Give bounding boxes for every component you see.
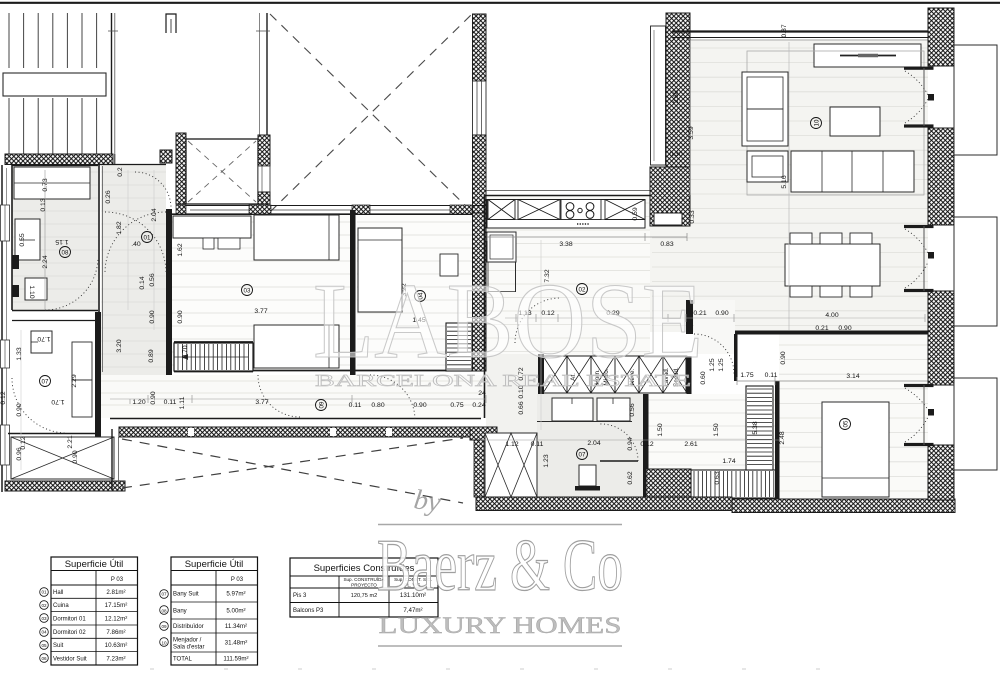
svg-text:0.63: 0.63 — [714, 471, 721, 484]
svg-text:1.23: 1.23 — [543, 454, 550, 467]
svg-text:Vestidor Suit: Vestidor Suit — [53, 657, 87, 663]
svg-text:0.12: 0.12 — [20, 436, 27, 449]
svg-text:0.24: 0.24 — [472, 402, 485, 409]
svg-text:.40: .40 — [131, 241, 141, 248]
svg-text:0.12: 0.12 — [640, 441, 653, 448]
svg-text:10: 10 — [813, 119, 820, 126]
svg-text:P 03: P 03 — [111, 577, 124, 583]
svg-text:31.48m²: 31.48m² — [225, 640, 248, 647]
svg-text:0.13: 0.13 — [40, 198, 47, 211]
svg-text:06: 06 — [41, 656, 47, 661]
svg-text:2.81m²: 2.81m² — [106, 589, 125, 596]
svg-text:0.21: 0.21 — [815, 325, 828, 332]
svg-text:3.38: 3.38 — [559, 241, 572, 248]
svg-text:3.77: 3.77 — [254, 308, 267, 315]
svg-text:0.90: 0.90 — [16, 403, 23, 416]
svg-text:P 03: P 03 — [231, 577, 244, 583]
svg-text:0.75: 0.75 — [450, 402, 463, 409]
svg-text:03: 03 — [244, 287, 251, 294]
svg-text:by: by — [412, 484, 443, 518]
svg-text:0.11: 0.11 — [765, 372, 778, 379]
svg-text:TOTAL: TOTAL — [173, 657, 192, 663]
svg-text:0.55: 0.55 — [19, 233, 26, 246]
svg-text:2.48: 2.48 — [779, 431, 786, 444]
svg-text:Sala d'estar: Sala d'estar — [173, 645, 205, 651]
svg-text:Superficie Útil: Superficie Útil — [185, 559, 244, 570]
svg-text:0.70: 0.70 — [182, 345, 189, 358]
svg-text:2.24: 2.24 — [42, 255, 49, 268]
svg-text:08: 08 — [62, 249, 69, 256]
svg-text:5.97m²: 5.97m² — [226, 591, 245, 598]
svg-text:0.11: 0.11 — [531, 441, 544, 448]
svg-text:3.20: 3.20 — [116, 339, 123, 352]
svg-text:0.90: 0.90 — [177, 310, 184, 323]
svg-text:0.90: 0.90 — [149, 310, 156, 323]
svg-text:07: 07 — [579, 451, 586, 458]
svg-text:1.70: 1.70 — [51, 398, 64, 405]
svg-text:1.33: 1.33 — [16, 347, 23, 360]
svg-text:09: 09 — [161, 624, 167, 629]
svg-text:0.2: 0.2 — [117, 167, 124, 177]
svg-text:0.26: 0.26 — [105, 190, 112, 203]
svg-text:10: 10 — [161, 640, 167, 645]
svg-text:BARCELONA REAL ESTATE: BARCELONA REAL ESTATE — [315, 371, 691, 390]
svg-text:0.90: 0.90 — [838, 325, 851, 332]
svg-text:0.89: 0.89 — [148, 349, 155, 362]
svg-text:0.12: 0.12 — [0, 391, 7, 404]
svg-text:0.62: 0.62 — [627, 471, 634, 484]
svg-text:5.16: 5.16 — [781, 175, 788, 188]
svg-text:12.12m²: 12.12m² — [105, 616, 128, 623]
svg-text:Suit: Suit — [53, 643, 64, 649]
svg-text:Pis 3: Pis 3 — [293, 593, 307, 599]
svg-text:0.14: 0.14 — [139, 276, 146, 289]
svg-text:4.00: 4.00 — [825, 312, 838, 319]
svg-text:08: 08 — [161, 608, 167, 613]
svg-text:2.21: 2.21 — [67, 435, 74, 448]
svg-text:05: 05 — [842, 420, 849, 427]
svg-text:3.77: 3.77 — [255, 399, 268, 406]
svg-text:1.75: 1.75 — [740, 372, 753, 379]
svg-text:01: 01 — [41, 589, 47, 594]
svg-text:07: 07 — [161, 591, 167, 596]
svg-text:1.10: 1.10 — [28, 285, 35, 298]
svg-text:PROYECTO: PROYECTO — [351, 583, 377, 588]
svg-text:LUXURY HOMES: LUXURY HOMES — [379, 613, 622, 638]
svg-text:1.74: 1.74 — [722, 458, 735, 465]
svg-text:111.59m²: 111.59m² — [223, 656, 248, 663]
svg-text:Distribuïdor: Distribuïdor — [173, 624, 204, 630]
svg-text:07: 07 — [42, 378, 49, 385]
svg-text:0.90: 0.90 — [72, 450, 79, 463]
svg-text:1.82: 1.82 — [116, 221, 123, 234]
svg-text:0.66: 0.66 — [518, 401, 525, 414]
svg-text:Bany: Bany — [173, 609, 187, 615]
svg-text:0.87: 0.87 — [781, 24, 788, 37]
svg-text:0.90: 0.90 — [413, 402, 426, 409]
svg-text:2.04: 2.04 — [587, 440, 600, 447]
svg-text:0.90: 0.90 — [780, 351, 787, 364]
svg-text:Cuina: Cuina — [53, 603, 69, 609]
svg-text:1.25: 1.25 — [718, 358, 725, 371]
svg-text:1.25: 1.25 — [709, 358, 716, 371]
svg-text:0.33: 0.33 — [689, 210, 696, 223]
svg-text:0.56: 0.56 — [149, 273, 156, 286]
svg-text:2.29: 2.29 — [71, 374, 78, 387]
svg-text:0.73: 0.73 — [42, 178, 49, 191]
svg-text:2.61: 2.61 — [684, 441, 697, 448]
svg-text:0.83: 0.83 — [660, 241, 673, 248]
svg-text:0.80: 0.80 — [371, 402, 384, 409]
svg-text:0.90: 0.90 — [715, 310, 728, 317]
svg-text:1.50: 1.50 — [657, 423, 664, 436]
svg-text:0.30: 0.30 — [669, 151, 682, 158]
svg-text:03: 03 — [41, 616, 47, 621]
svg-text:11.34m²: 11.34m² — [225, 623, 247, 630]
svg-text:09: 09 — [318, 401, 325, 408]
svg-text:Dormitori 01: Dormitori 01 — [53, 617, 86, 623]
svg-text:7.86m²: 7.86m² — [106, 629, 125, 636]
svg-text:Superficie Útil: Superficie Útil — [65, 559, 124, 570]
svg-text:1.15: 1.15 — [55, 238, 68, 245]
svg-text:0.11: 0.11 — [164, 399, 177, 406]
svg-text:1.70: 1.70 — [37, 335, 50, 342]
svg-text:01: 01 — [144, 234, 151, 241]
svg-text:Menjador /: Menjador / — [173, 638, 202, 644]
svg-text:05: 05 — [41, 643, 47, 648]
svg-text:0.59: 0.59 — [632, 207, 639, 220]
svg-text:1.12: 1.12 — [505, 441, 518, 448]
svg-text:LABOSE: LABOSE — [313, 262, 703, 381]
svg-text:Balcons P3: Balcons P3 — [293, 608, 324, 614]
svg-text:3.14: 3.14 — [846, 373, 859, 380]
svg-text:04: 04 — [41, 629, 47, 634]
svg-text:Baerz & Co: Baerz & Co — [377, 525, 623, 607]
svg-text:0.56: 0.56 — [629, 403, 636, 416]
svg-text:Hall: Hall — [53, 590, 63, 596]
svg-text:5.00m²: 5.00m² — [226, 608, 245, 615]
svg-text:Dormitori 02: Dormitori 02 — [53, 630, 86, 636]
svg-text:0.11: 0.11 — [349, 402, 362, 409]
svg-text:5.38: 5.38 — [752, 421, 759, 434]
svg-text:0.90: 0.90 — [150, 391, 157, 404]
svg-text:17.15m²: 17.15m² — [105, 602, 128, 609]
svg-text:0.94: 0.94 — [627, 437, 634, 450]
svg-text:1.20: 1.20 — [132, 399, 145, 406]
svg-text:7.23m²: 7.23m² — [106, 656, 125, 663]
svg-text:Bany Suit: Bany Suit — [173, 592, 199, 598]
svg-text:24: 24 — [478, 390, 486, 397]
svg-text:1.50: 1.50 — [713, 423, 720, 436]
svg-text:02: 02 — [41, 603, 47, 608]
svg-text:2.66: 2.66 — [673, 90, 680, 103]
svg-text:120,75 m2: 120,75 m2 — [351, 593, 377, 599]
svg-text:1.62: 1.62 — [177, 243, 184, 256]
svg-text:2.04: 2.04 — [151, 208, 158, 221]
svg-text:3.59: 3.59 — [688, 126, 695, 139]
svg-text:1.11: 1.11 — [179, 396, 186, 409]
svg-text:10.63m²: 10.63m² — [105, 642, 128, 649]
